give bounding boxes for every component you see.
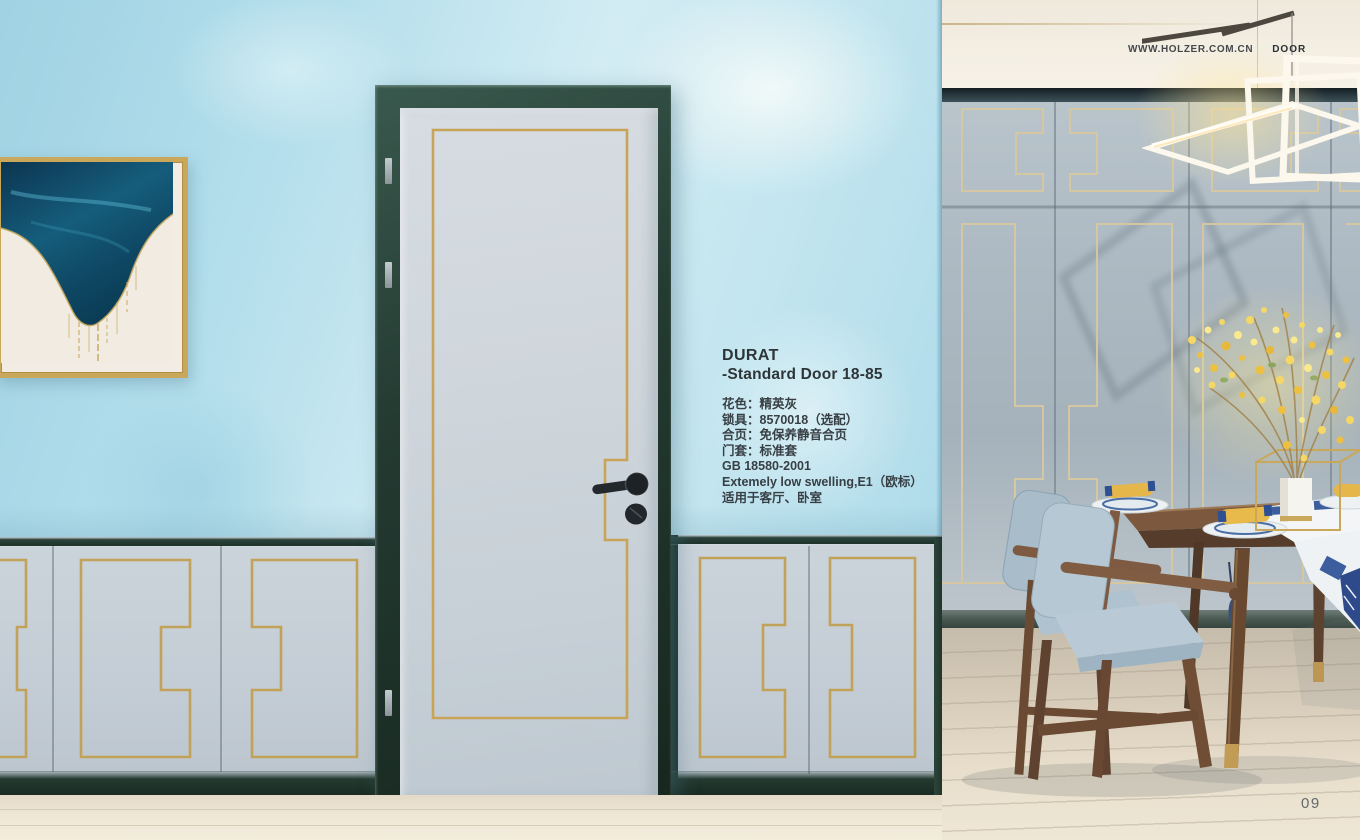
wainscot-top-rail xyxy=(660,535,942,544)
panel-groove xyxy=(808,546,810,774)
spec-line: 锁具：8570018（选配） xyxy=(722,413,942,429)
spec-line: 花色：精英灰 xyxy=(722,397,942,413)
category-label: DOOR xyxy=(1272,44,1306,55)
abstract-painting xyxy=(0,157,188,378)
wainscot-left xyxy=(0,537,382,800)
table-leg-gold-cap xyxy=(1313,662,1324,682)
wood-floor-left xyxy=(0,795,942,840)
door-gold-trim xyxy=(433,130,627,718)
door-details xyxy=(400,108,658,800)
product-name: DURAT xyxy=(722,346,942,365)
showroom-photo-left: DURAT -Standard Door 18-85 花色：精英灰 锁具：857… xyxy=(0,0,942,840)
painting-artwork xyxy=(1,162,173,363)
floor-seam xyxy=(0,809,942,810)
spec-line: GB 18580-2001 xyxy=(722,459,942,475)
page-header: WWW.HOLZER.COM.CN DOOR xyxy=(1128,41,1354,57)
door-panel xyxy=(400,108,658,800)
table-front-leg xyxy=(1224,548,1250,768)
spec-line: 合页：免保养静音合页 xyxy=(722,428,942,444)
wainscot-right xyxy=(660,535,942,800)
wall-corner-base xyxy=(934,537,942,800)
page-number: 09 xyxy=(1301,795,1321,812)
wainscot-top-rail xyxy=(0,537,382,546)
product-specs: 花色：精英灰 锁具：8570018（选配） 合页：免保养静音合页 门套：标准套 … xyxy=(722,397,942,506)
pendant-light xyxy=(1142,0,1360,215)
spec-line: 门套：标准套 xyxy=(722,444,942,460)
showroom-photo-right xyxy=(942,0,1360,840)
door-frame xyxy=(375,85,671,800)
door-handle xyxy=(592,473,649,525)
catalog-page: DURAT -Standard Door 18-85 花色：精英灰 锁具：857… xyxy=(0,0,1360,840)
product-series: -Standard Door 18-85 xyxy=(722,365,942,384)
spec-line: Extemely low swelling,E1（欧标） xyxy=(722,475,942,491)
wainscot-gold-trim xyxy=(660,535,942,800)
door-hinge xyxy=(385,690,392,716)
door-lock-knob xyxy=(625,504,647,525)
floor-seam xyxy=(0,825,942,826)
floor-shadow xyxy=(1292,615,1360,710)
door-hinge xyxy=(385,262,392,288)
panel-groove xyxy=(52,546,54,772)
dining-set xyxy=(942,280,1360,840)
door-hinge xyxy=(385,158,392,184)
wainscot-gold-trim xyxy=(0,537,382,800)
panel-groove xyxy=(220,546,222,772)
website-label: WWW.HOLZER.COM.CN xyxy=(1128,44,1253,55)
product-info: DURAT -Standard Door 18-85 花色：精英灰 锁具：857… xyxy=(722,346,942,506)
spec-line: 适用于客厅、卧室 xyxy=(722,491,942,507)
